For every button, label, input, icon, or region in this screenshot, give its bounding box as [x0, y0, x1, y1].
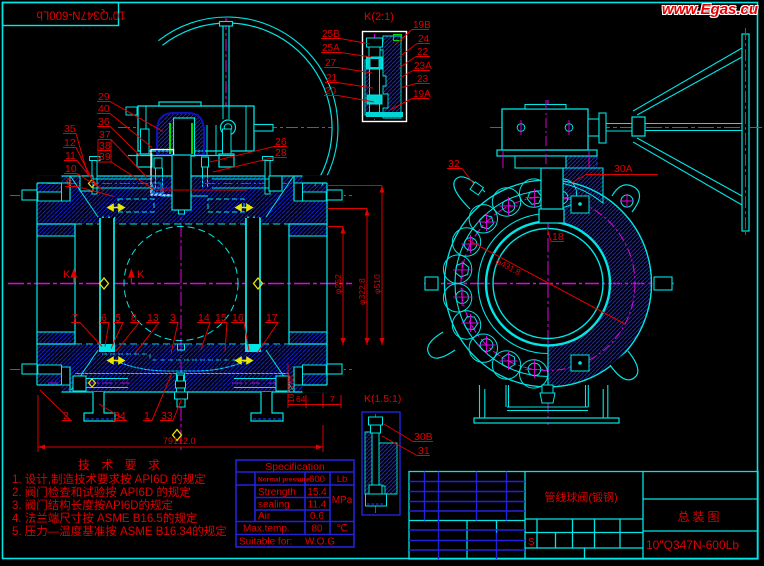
svg-text:Max.temp.: Max.temp. [243, 524, 290, 535]
svg-text:3. 阀门结构长度按API6D的规定: 3. 阀门结构长度按API6D的规定 [12, 498, 174, 512]
svg-text:φ431.8: φ431.8 [494, 256, 523, 278]
svg-text:K: K [63, 269, 71, 281]
svg-text:φ510: φ510 [372, 274, 382, 294]
svg-text:MPa: MPa [332, 495, 353, 506]
svg-text:2. 阀门检查和试验按 API6D 的规定: 2. 阀门检查和试验按 API6D 的规定 [12, 485, 191, 499]
svg-text:7: 7 [330, 394, 335, 404]
svg-text:791±2.0: 791±2.0 [163, 436, 195, 446]
svg-text:Air: Air [258, 511, 271, 522]
svg-text:www.Egas.cu: www.Egas.cu [662, 1, 758, 18]
svg-text:K: K [137, 269, 145, 281]
svg-text:K(2:1): K(2:1) [364, 11, 394, 23]
svg-text:39: 39 [99, 151, 111, 163]
svg-text:600: 600 [309, 474, 325, 485]
svg-text:80: 80 [311, 524, 323, 535]
svg-text:10-R35: 10-R35 [286, 375, 296, 403]
svg-text:管线球阀(锻钢): 管线球阀(锻钢) [544, 490, 617, 504]
svg-text:10"Q347N-600Lb: 10"Q347N-600Lb [646, 538, 739, 552]
svg-text:W.O.G: W.O.G [305, 537, 335, 548]
svg-text:sealing: sealing [258, 500, 290, 511]
svg-text:S: S [528, 537, 535, 548]
svg-text:φ252: φ252 [333, 274, 343, 294]
svg-text:总装图: 总装图 [677, 510, 722, 524]
svg-text:64: 64 [296, 394, 306, 404]
svg-text:K(1.5:1): K(1.5:1) [364, 393, 401, 405]
svg-text:℃: ℃ [336, 524, 347, 535]
svg-text:Lb: Lb [337, 474, 348, 485]
svg-text:15.4: 15.4 [307, 487, 327, 498]
svg-text:1. 设计,制造技术要求按 API6D 的规定: 1. 设计,制造技术要求按 API6D 的规定 [12, 472, 206, 486]
svg-text:Suitable for:: Suitable for: [239, 537, 292, 548]
svg-text:Normal pressure: Normal pressure [258, 477, 310, 484]
svg-text:Strength: Strength [258, 487, 296, 498]
svg-text:10"Q347N-600Lb: 10"Q347N-600Lb [36, 8, 125, 20]
svg-text:4. 法兰端尺寸按 ASME B16.5的规定: 4. 法兰端尺寸按 ASME B16.5的规定 [12, 511, 198, 525]
svg-text:11.4: 11.4 [308, 500, 327, 511]
svg-text:φ322.8: φ322.8 [357, 278, 367, 305]
svg-text:5. 压力—温度基准按 ASME B16.34的规定: 5. 压力—温度基准按 ASME B16.34的规定 [12, 524, 227, 538]
svg-text:30A: 30A [614, 163, 633, 175]
svg-text:技 术 要 求: 技 术 要 求 [78, 458, 164, 472]
svg-text:Specification: Specification [265, 461, 325, 473]
svg-text:0.6: 0.6 [310, 511, 324, 522]
